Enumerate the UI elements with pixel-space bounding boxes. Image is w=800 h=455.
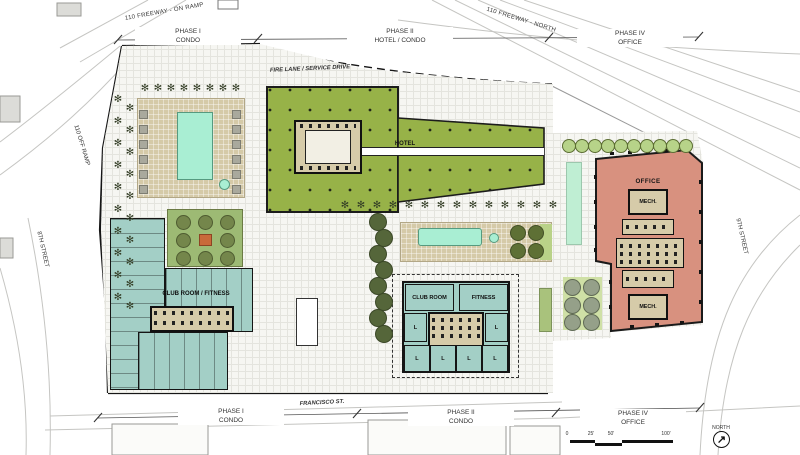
tree-icon [528, 225, 544, 241]
palm-tree-icon: ✻ [126, 214, 134, 224]
hotel-wing-roof [398, 118, 544, 202]
palm-tree-icon: ✻ [114, 293, 122, 303]
cabana-icon [232, 185, 241, 194]
phase1-core [150, 306, 234, 332]
garden-feature [199, 234, 212, 246]
tree-icon [679, 139, 693, 153]
tree-icon [198, 215, 213, 230]
office-core-cells [626, 225, 670, 229]
tree-icon [627, 139, 641, 153]
palm-tree-icon: ✻ [126, 170, 134, 180]
palm-tree-icon: ✻ [517, 201, 525, 211]
scale-tick-0: 0 [562, 431, 572, 437]
unit-label: L [441, 356, 444, 362]
cabana-icon [139, 125, 148, 134]
club-room: CLUB ROOM [405, 284, 454, 311]
phase-label-bottom-2: PHASE II CONDO [408, 408, 514, 426]
tree-icon [601, 139, 615, 153]
tree-icon [575, 139, 589, 153]
palm-tree-icon: ✻ [114, 205, 122, 215]
unit-room: L [482, 345, 508, 372]
palm-tree-icon: ✻ [126, 126, 134, 136]
palm-tree-icon: ✻ [193, 84, 201, 94]
tree-icon [640, 139, 654, 153]
lawn-strip [566, 162, 582, 245]
tree-icon [583, 297, 600, 314]
cabana-icon [139, 155, 148, 164]
phase-label-bottom-1: PHASE I CONDO [178, 407, 284, 425]
scale-tick-50: 50' [604, 431, 618, 437]
unit-room: L [430, 345, 456, 372]
hotel-label: HOTEL [384, 140, 426, 149]
unit-label: L [415, 356, 418, 362]
cabana-icon [232, 140, 241, 149]
tree-icon [220, 215, 235, 230]
palm-tree-icon: ✻ [533, 201, 541, 211]
phase1-condo-south-wing [138, 332, 228, 390]
phase2-core-cells [432, 326, 480, 330]
office-core-cells [620, 260, 680, 264]
phase1-core-cells [154, 321, 230, 325]
palm-tree-icon: ✻ [126, 104, 134, 114]
palm-tree-icon: ✻ [126, 192, 134, 202]
tree-icon [564, 297, 581, 314]
palm-tree-icon: ✻ [114, 117, 122, 127]
palm-tree-icon: ✻ [206, 84, 214, 94]
tree-icon [176, 233, 191, 248]
phase-name: PHASE II [411, 408, 511, 417]
unit-room: L [485, 313, 508, 342]
palm-tree-icon: ✻ [126, 258, 134, 268]
palm-tree-icon: ✻ [126, 236, 134, 246]
palm-tree-icon: ✻ [549, 201, 557, 211]
palm-tree-icon: ✻ [389, 201, 397, 211]
palm-tree-icon: ✻ [485, 201, 493, 211]
palm-tree-icon: ✻ [167, 84, 175, 94]
scale-tick-25: 25' [584, 431, 598, 437]
phase-label-top-3: PHASE IV OFFICE [577, 29, 683, 47]
tree-icon [220, 251, 235, 266]
cabana-icon [232, 170, 241, 179]
scale-bar-segment [570, 440, 595, 443]
palm-tree-icon: ✻ [126, 280, 134, 290]
phase-label-top-2: PHASE II HOTEL / CONDO [347, 27, 453, 45]
phase-use: CONDO [411, 417, 511, 426]
palm-tree-icon: ✻ [469, 201, 477, 211]
cabana-icon [139, 140, 148, 149]
tree-icon [220, 233, 235, 248]
club-room-label: CLUB ROOM [412, 295, 447, 301]
cabana-icon [139, 110, 148, 119]
hotel-core-court [305, 130, 351, 164]
phase-label-bottom-3: PHASE IV OFFICE [580, 409, 686, 427]
phase-use: CONDO [138, 36, 238, 45]
cabana-icon [232, 155, 241, 164]
palm-tree-icon: ✻ [437, 201, 445, 211]
tree-icon [583, 314, 600, 331]
garage-ramp [296, 298, 318, 346]
tree-icon [510, 243, 526, 259]
palm-tree-icon: ✻ [232, 84, 240, 94]
tree-icon [510, 225, 526, 241]
club-room-fitness-label: CLUB ROOM / FITNESS [140, 290, 252, 299]
tree-icon [528, 243, 544, 259]
planter-strip [539, 288, 552, 332]
office-mech-upper: MECH. [628, 189, 668, 215]
phase1-spa [219, 179, 230, 190]
palm-tree-icon: ✻ [114, 183, 122, 193]
cabana-icon [232, 110, 241, 119]
palm-tree-icon: ✻ [126, 148, 134, 158]
mech-label: MECH. [639, 304, 656, 310]
cabana-icon [139, 185, 148, 194]
palm-tree-icon: ✻ [114, 95, 122, 105]
palm-tree-icon: ✻ [357, 201, 365, 211]
palm-tree-icon: ✻ [114, 161, 122, 171]
mech-label: MECH. [639, 199, 656, 205]
tree-icon [666, 139, 680, 153]
phase-name: PHASE I [138, 27, 238, 36]
phase2-spa [489, 233, 499, 243]
tree-icon [176, 215, 191, 230]
palm-tree-icon: ✻ [180, 84, 188, 94]
unit-label: L [467, 356, 470, 362]
palm-tree-icon: ✻ [341, 201, 349, 211]
tree-icon [583, 279, 600, 296]
palm-tree-icon: ✻ [373, 201, 381, 211]
hotel-core-cells [300, 124, 356, 128]
office-mech-lower: MECH. [628, 294, 668, 320]
phase-name: PHASE IV [580, 29, 680, 38]
phase-use: CONDO [181, 416, 281, 425]
office-label: OFFICE [626, 177, 670, 186]
phase2-core-cells [432, 318, 480, 322]
palm-tree-icon: ✻ [405, 201, 413, 211]
phase1-pool [177, 112, 213, 180]
fitness-room: FITNESS [459, 284, 508, 311]
tree-icon [375, 325, 393, 343]
phase-name: PHASE II [350, 27, 450, 36]
scale-bar-segment [595, 443, 622, 446]
phase-use: OFFICE [580, 38, 680, 47]
unit-room: L [404, 313, 427, 342]
scale-bar-segment [622, 440, 673, 443]
palm-tree-icon: ✻ [126, 302, 134, 312]
north-arrow-icon: ↗ [713, 431, 730, 448]
phase1-core-cells [154, 311, 230, 315]
phase2-core-cells [432, 334, 480, 338]
phase-name: PHASE IV [583, 409, 683, 418]
phase-name: PHASE I [181, 407, 281, 416]
phase-use: OFFICE [583, 418, 683, 427]
tree-icon [176, 251, 191, 266]
cabana-icon [232, 125, 241, 134]
unit-label: L [493, 356, 496, 362]
tree-icon [653, 139, 667, 153]
phase-use: HOTEL / CONDO [350, 36, 450, 45]
palm-tree-icon: ✻ [453, 201, 461, 211]
unit-room: L [456, 345, 482, 372]
palm-tree-icon: ✻ [114, 227, 122, 237]
palm-tree-icon: ✻ [421, 201, 429, 211]
unit-label: L [495, 325, 498, 331]
north-arrow-glyph: ↗ [717, 433, 726, 446]
hotel-core-cells [300, 166, 356, 170]
palm-tree-icon: ✻ [114, 139, 122, 149]
unit-label: L [414, 325, 417, 331]
palm-tree-icon: ✻ [154, 84, 162, 94]
palm-tree-icon: ✻ [114, 249, 122, 259]
palm-tree-icon: ✻ [219, 84, 227, 94]
phase-label-top-1: PHASE I CONDO [135, 27, 241, 45]
tree-icon [588, 139, 602, 153]
office-core-cells [620, 252, 680, 256]
tree-icon [564, 314, 581, 331]
tree-icon [198, 251, 213, 266]
scale-tick-100: 100' [658, 431, 674, 437]
tree-icon [614, 139, 628, 153]
tree-icon [564, 279, 581, 296]
tree-icon [562, 139, 576, 153]
palm-tree-icon: ✻ [501, 201, 509, 211]
site-plan-canvas: CLUB ROOM FITNESS L L L L L L MECH. MECH… [0, 0, 800, 455]
office-core-cells [626, 277, 670, 281]
office-core-cells [620, 244, 680, 248]
palm-tree-icon: ✻ [114, 271, 122, 281]
palm-tree-icon: ✻ [141, 84, 149, 94]
cabana-icon [139, 170, 148, 179]
phase2-lap-pool [418, 228, 482, 246]
unit-room: L [404, 345, 430, 372]
fitness-label: FITNESS [472, 295, 496, 301]
